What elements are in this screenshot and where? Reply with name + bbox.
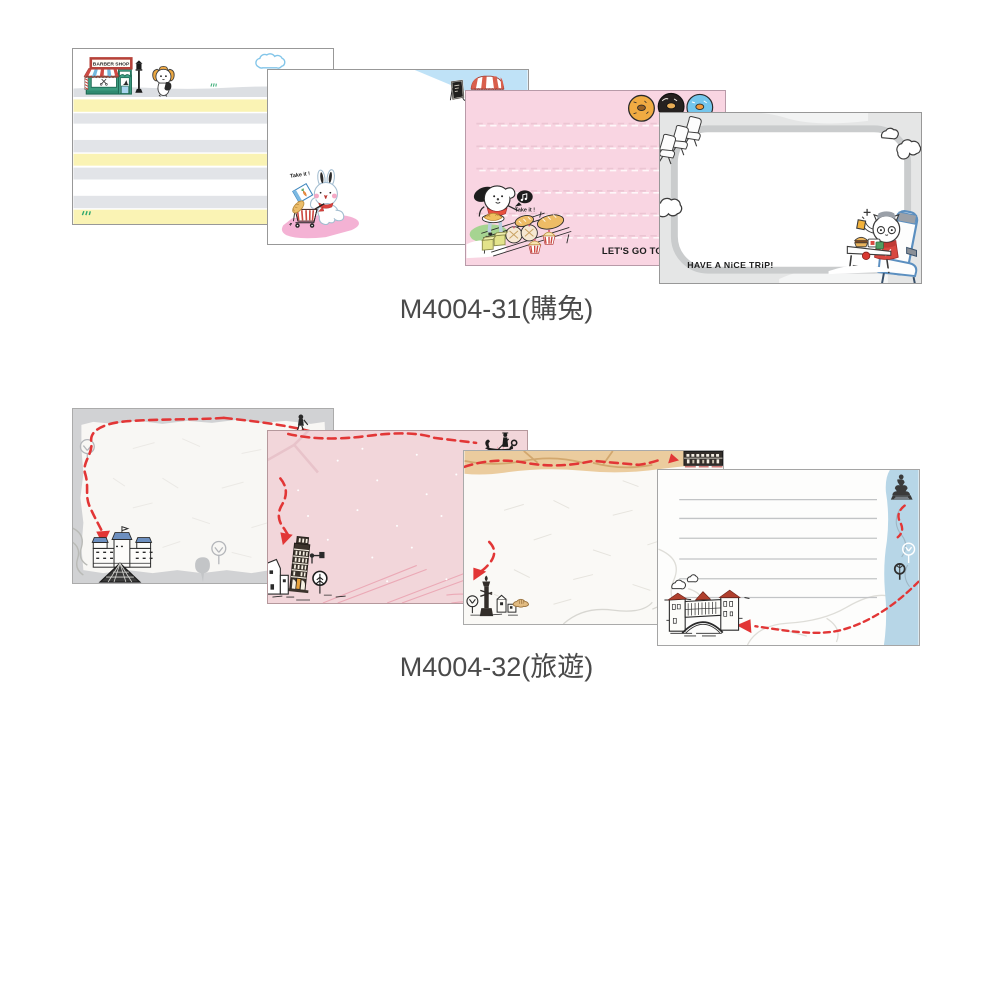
- svg-text:Take it !: Take it !: [290, 171, 311, 180]
- svg-text:BARBER SHOP: BARBER SHOP: [93, 62, 130, 68]
- svg-text:Take it !: Take it !: [515, 208, 535, 214]
- svg-text:HAVE A NiCE TRiP!: HAVE A NiCE TRiP!: [687, 260, 774, 270]
